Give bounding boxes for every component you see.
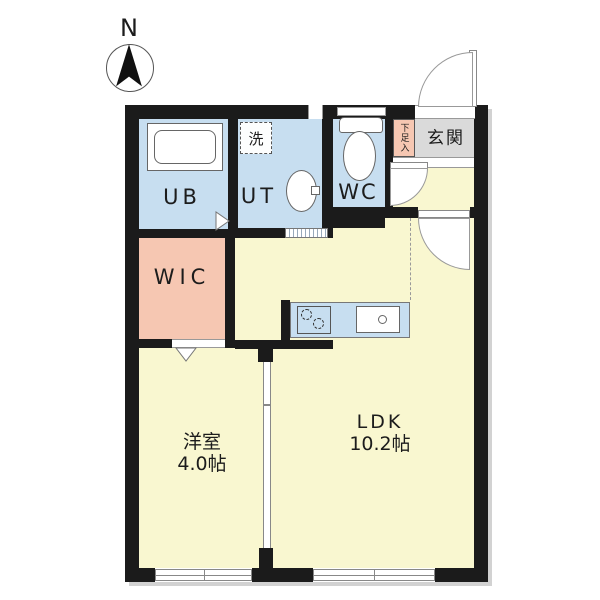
entrance-door-arc <box>418 52 473 107</box>
washing-machine-label: 洗 <box>248 128 263 149</box>
kitchen-sink-drain <box>378 315 387 324</box>
window-wc <box>337 107 386 116</box>
label-wc: WC <box>338 180 377 204</box>
window-bedroom <box>155 569 252 581</box>
wall-divider-post-bottom <box>259 548 273 568</box>
wall-bottom-1 <box>125 568 155 582</box>
stove-burner-2 <box>313 318 324 329</box>
wall-ut-bottom-a <box>238 228 285 238</box>
shoe-storage-box: 下足入 <box>393 119 415 157</box>
wall-right <box>474 105 488 582</box>
entrance-doorway <box>415 105 475 119</box>
compass-north-label: N <box>120 14 138 42</box>
label-ldk-size: 10.2帖 <box>349 433 410 455</box>
wall-hall-a <box>385 207 418 218</box>
wall-top-1 <box>125 105 308 119</box>
washing-machine-icon: 洗 <box>240 122 272 154</box>
label-bedroom-name: 洋室 <box>177 431 226 453</box>
wall-bottom-3 <box>435 568 488 582</box>
room-boundary-dashed-line <box>410 218 411 300</box>
wall-divider-post-top <box>258 342 273 362</box>
label-wic: WIC <box>154 265 211 289</box>
ldk-door-leaf <box>418 210 470 218</box>
window-ldk <box>313 569 435 581</box>
sink-faucet <box>311 186 320 195</box>
ub-door-swing-arrow <box>214 211 231 232</box>
stove-burner-1 <box>301 309 312 320</box>
label-bedroom: 洋室 4.0帖 <box>177 431 226 475</box>
sliding-door-joint <box>263 404 271 406</box>
shoe-storage-label: 下足入 <box>398 123 411 153</box>
wall-bedroom-top <box>235 340 333 349</box>
bathtub-inner <box>154 130 216 164</box>
window-ut <box>308 105 323 119</box>
wall-wic-right <box>225 238 235 348</box>
wic-door-swing-arrow <box>172 347 200 363</box>
wall-kitchen-left <box>281 300 290 340</box>
ut-sliding-door <box>285 228 328 238</box>
wall-left <box>125 105 139 582</box>
toilet-icon <box>343 131 376 181</box>
wall-hall-b <box>470 207 488 218</box>
label-ldk: LDK 10.2帖 <box>349 411 410 455</box>
label-genkan: 玄関 <box>427 124 465 149</box>
wall-wic-bottom <box>139 339 172 348</box>
label-bedroom-size: 4.0帖 <box>177 453 226 475</box>
north-arrow-icon <box>106 44 152 90</box>
label-ldk-name: LDK <box>349 411 410 433</box>
bedroom-sliding-door <box>263 362 271 548</box>
floor-plan: N 下足入 <box>0 0 600 600</box>
wall-wc-bottom <box>328 207 385 228</box>
wall-bottom-2 <box>252 568 313 582</box>
label-ub: UB <box>163 185 201 209</box>
label-ut: UT <box>241 184 277 208</box>
